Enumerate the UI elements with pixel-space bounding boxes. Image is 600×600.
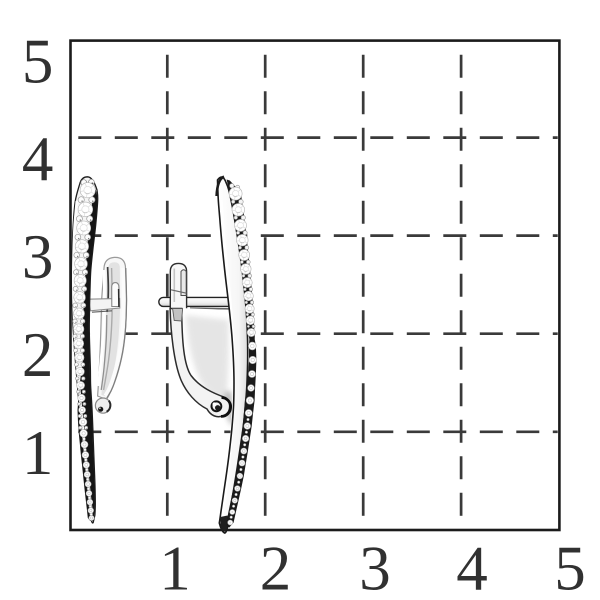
svg-text:3: 3 [22,222,54,292]
svg-text:5: 5 [22,26,54,96]
svg-text:2: 2 [260,534,292,600]
svg-text:2: 2 [22,320,54,390]
svg-text:3: 3 [359,534,391,600]
svg-text:1: 1 [22,418,54,488]
svg-text:1: 1 [159,534,191,600]
svg-text:4: 4 [456,534,488,600]
svg-text:4: 4 [22,124,54,194]
svg-text:5: 5 [554,534,586,600]
